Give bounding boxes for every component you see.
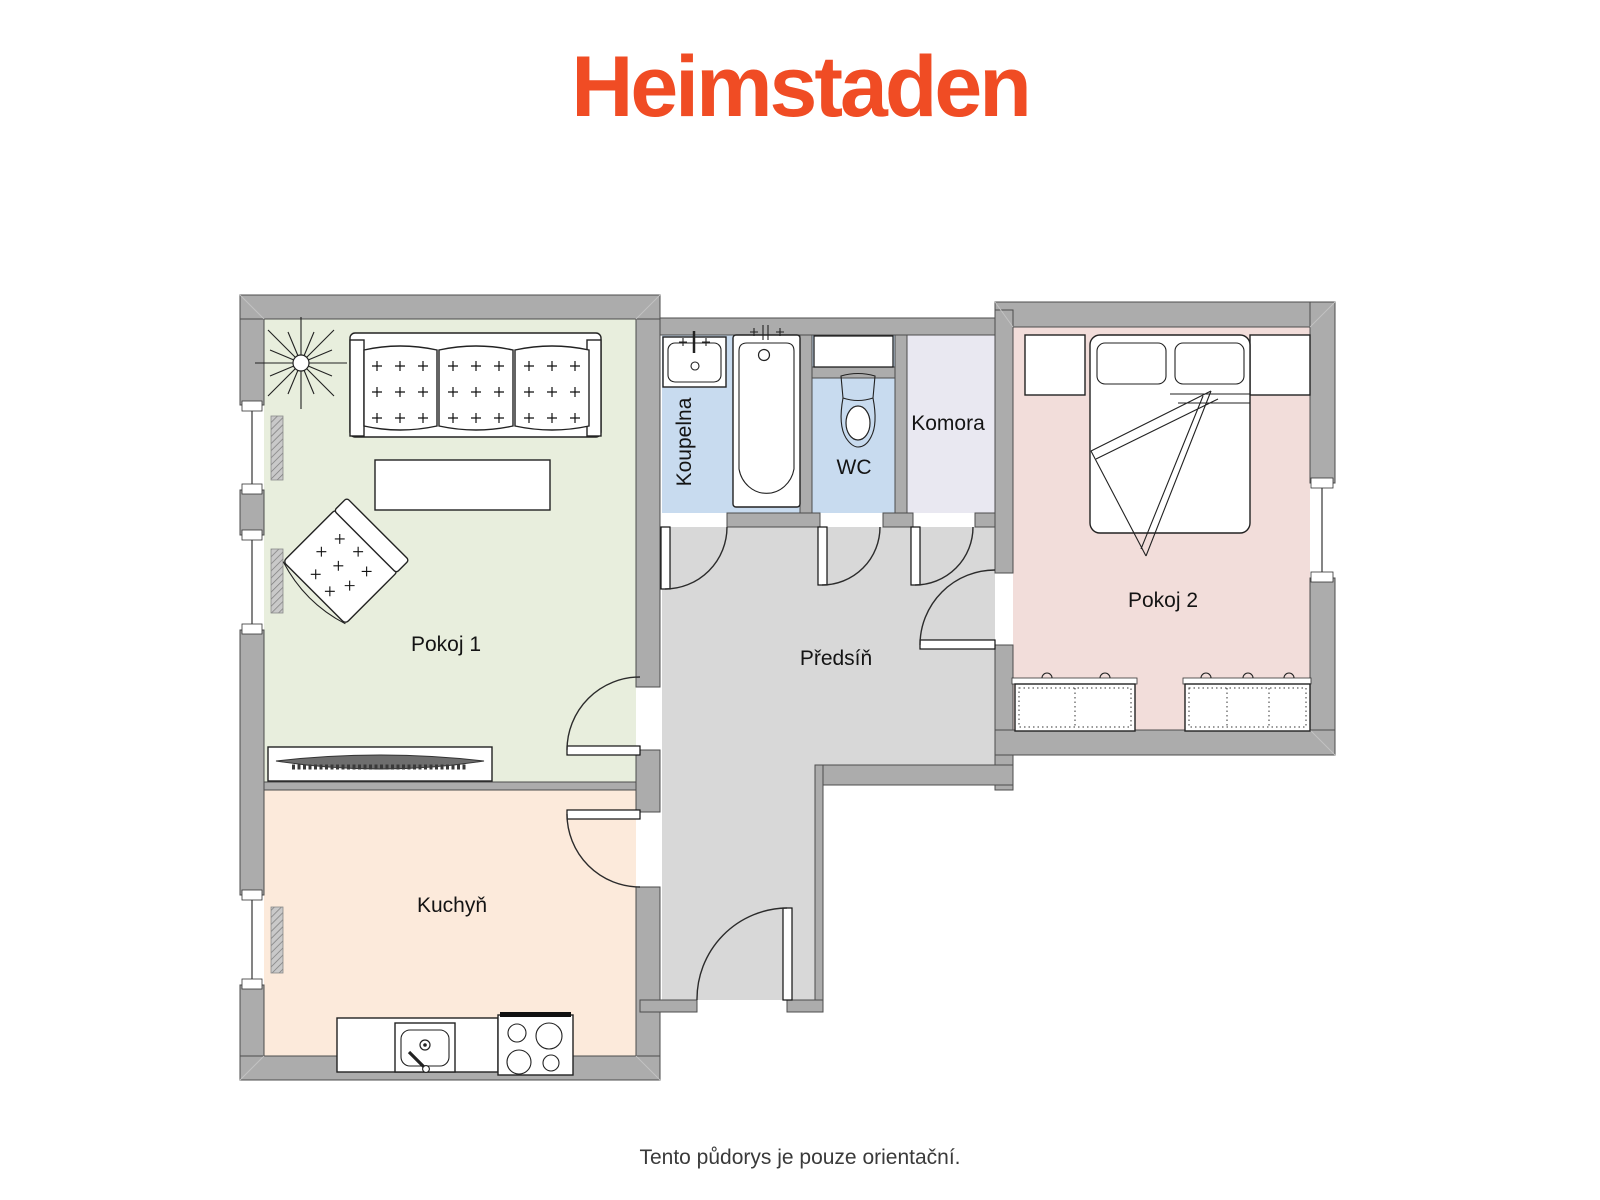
wardrobe-right [1250,335,1310,395]
washbasin [663,331,726,387]
room-label-pokoj-2: Pokoj 2 [1128,589,1198,612]
radiator-icon [271,416,283,480]
floorplan: Pokoj 1 Kuchyň Koupelna WC Komora Předsí… [0,0,1600,1200]
room-label-komora: Komora [911,412,985,435]
furniture-kuchyn [337,1012,573,1075]
room-label-koupelna: Koupelna [673,397,696,486]
stove [498,1012,573,1075]
window-pokoj1-lower [242,530,262,634]
window-kuchyn [242,890,262,989]
disclaimer-text: Tento půdorys je pouze orientační. [0,1146,1600,1170]
plant-icon [255,317,347,409]
coffee-table [375,460,550,510]
tv-lowboard [268,747,492,781]
dresser-2-door [1012,673,1137,731]
room-label-wc: WC [837,456,872,479]
duct-box [814,336,893,367]
dresser-3-door [1183,673,1311,731]
radiator-icon [271,549,283,613]
room-floor-kuchyn [264,790,636,1056]
room-floor-predsin [662,513,995,1000]
sofa [350,333,601,437]
room-label-kuchyn: Kuchyň [417,894,487,917]
double-bed [1090,335,1250,556]
window-pokoj2 [1311,478,1333,582]
room-label-pokoj-1: Pokoj 1 [411,633,481,656]
window-pokoj1-upper [242,401,262,494]
wardrobe-left [1025,335,1085,395]
radiator-icon [271,907,283,973]
bathtub [733,325,800,507]
kitchen-sink [395,1023,455,1072]
room-label-predsin: Předsíň [800,647,872,670]
